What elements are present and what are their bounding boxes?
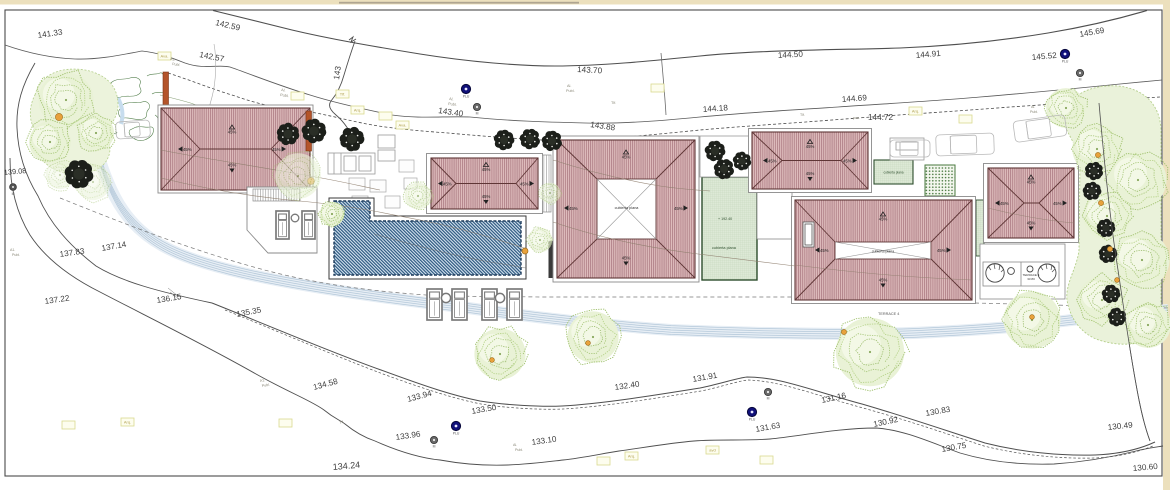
svg-text:TERRACE 4: TERRACE 4 [878, 312, 899, 316]
svg-text:Publ.: Publ. [1030, 110, 1038, 114]
svg-text:45%: 45% [806, 144, 815, 149]
svg-text:A1.: A1. [170, 57, 176, 62]
svg-text:Tlf.: Tlf. [611, 101, 616, 105]
svg-text:Publ.: Publ. [566, 89, 575, 93]
svg-text:144.72: 144.72 [868, 113, 893, 122]
svg-text:cubierta plana: cubierta plana [615, 206, 640, 210]
svg-text:Ava.: Ava. [161, 54, 169, 59]
svg-text:45%: 45% [228, 130, 237, 135]
svg-text:Ava.: Ava. [399, 123, 407, 128]
svg-text:Tlf.: Tlf. [340, 92, 346, 97]
svg-text:45%: 45% [622, 256, 631, 261]
svg-text:Arq.: Arq. [124, 420, 131, 425]
svg-text:Publ.: Publ. [515, 448, 523, 452]
svg-text:144.50: 144.50 [778, 50, 804, 60]
svg-text:45%: 45% [272, 147, 281, 152]
svg-text:PLU: PLU [453, 432, 460, 436]
svg-text:Al.: Al. [449, 97, 454, 101]
svg-text:45%: 45% [820, 248, 829, 253]
svg-text:45%: 45% [482, 167, 491, 172]
svg-text:45%: 45% [937, 248, 946, 253]
svg-text:144.69: 144.69 [842, 93, 868, 104]
svg-text:45%: 45% [879, 278, 888, 283]
svg-text:45%: 45% [879, 217, 888, 222]
svg-text:Tlf.: Tlf. [800, 113, 805, 117]
svg-text:Al.: Al. [1031, 105, 1035, 109]
svg-text:45%: 45% [443, 181, 452, 186]
svg-text:45%: 45% [768, 158, 777, 163]
svg-text:45%: 45% [569, 206, 578, 211]
svg-text:M: M [12, 192, 15, 196]
svg-text:cubierta plana: cubierta plana [872, 250, 895, 254]
svg-text:45%: 45% [183, 147, 192, 152]
svg-text:45%: 45% [1000, 201, 1009, 206]
svg-text:M: M [1079, 78, 1082, 82]
svg-text:Publ.: Publ. [12, 253, 20, 257]
svg-text:45%: 45% [622, 155, 631, 160]
svg-text:45%: 45% [806, 171, 815, 176]
svg-text:Al.: Al. [567, 84, 571, 88]
svg-text:45%: 45% [1027, 221, 1036, 226]
svg-text:45%: 45% [520, 181, 529, 186]
svg-text:143.70: 143.70 [577, 65, 603, 75]
svg-text:45%: 45% [1053, 201, 1062, 206]
svg-text:cubierta plana: cubierta plana [712, 246, 737, 250]
svg-text:Arq.: Arq. [912, 109, 919, 114]
svg-text:+ 192.40: + 192.40 [718, 217, 732, 221]
svg-text:45%: 45% [674, 206, 683, 211]
svg-text:45%: 45% [482, 194, 491, 199]
svg-text:45%: 45% [1027, 180, 1036, 185]
svg-text:144.18: 144.18 [703, 103, 729, 114]
svg-text:avd: avd [709, 448, 715, 453]
svg-text:pos.: pos. [853, 116, 860, 120]
svg-text:33.80: 33.80 [1027, 277, 1035, 281]
svg-text:Al.: Al. [281, 88, 286, 93]
svg-text:PLU: PLU [1062, 60, 1069, 64]
svg-text:PLU: PLU [749, 418, 756, 422]
svg-text:Arq.: Arq. [628, 454, 635, 459]
svg-text:M: M [476, 112, 479, 116]
svg-text:Al.: Al. [513, 443, 517, 447]
svg-text:PLU: PLU [463, 95, 470, 99]
svg-text:M: M [433, 445, 436, 449]
svg-text:Arq.: Arq. [354, 108, 361, 113]
svg-text:cubierta plana: cubierta plana [883, 171, 903, 175]
svg-text:M: M [767, 397, 770, 401]
svg-text:45%: 45% [843, 158, 852, 163]
svg-text:A1.: A1. [10, 248, 15, 252]
